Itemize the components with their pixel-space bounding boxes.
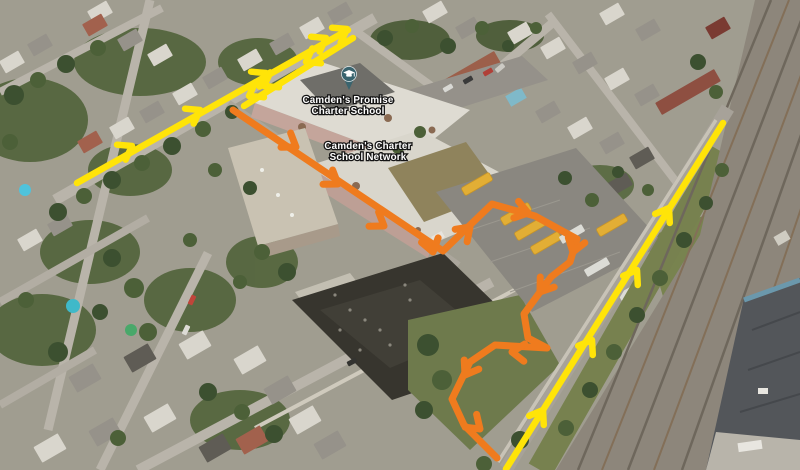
school2-label-line1: Camden's Charter: [324, 141, 411, 152]
school2-label-line2: School Network: [330, 152, 407, 163]
aerial-photo-backdrop: [0, 0, 800, 470]
school1-label-line1: Camden's Promise: [302, 95, 393, 106]
school1-label-line2: Charter School: [311, 106, 384, 117]
google-earth-aerial-view: Camden's Promise Charter School Camden's…: [0, 0, 800, 470]
